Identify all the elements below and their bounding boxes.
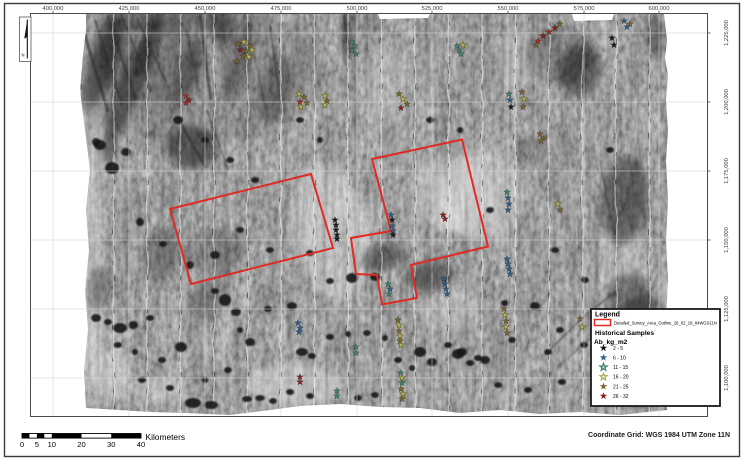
svg-text:21 - 25: 21 - 25 xyxy=(613,384,629,390)
svg-text:1,225,000: 1,225,000 xyxy=(724,20,730,46)
svg-text:5: 5 xyxy=(35,440,39,449)
svg-text:Historical Samples: Historical Samples xyxy=(595,330,654,337)
svg-text:40: 40 xyxy=(137,440,145,449)
svg-text:Coordinate Grid: WGS 1984 UTM: Coordinate Grid: WGS 1984 UTM Zone 11N xyxy=(588,432,730,439)
svg-text:Legend: Legend xyxy=(595,312,620,319)
svg-text:N: N xyxy=(22,53,25,58)
svg-text:2 - 5: 2 - 5 xyxy=(613,346,623,352)
svg-text:1,125,000: 1,125,000 xyxy=(724,296,730,322)
svg-text:1,175,000: 1,175,000 xyxy=(724,158,730,184)
svg-text:20: 20 xyxy=(77,440,85,449)
svg-text:1,100,000: 1,100,000 xyxy=(724,365,730,391)
svg-text:10: 10 xyxy=(48,440,56,449)
svg-text:11 - 15: 11 - 15 xyxy=(613,365,628,371)
svg-text:16 - 20: 16 - 20 xyxy=(613,375,629,381)
svg-text:0: 0 xyxy=(20,440,24,449)
svg-text:26 - 32: 26 - 32 xyxy=(613,394,629,400)
svg-text:1,200,000: 1,200,000 xyxy=(724,89,730,115)
svg-text:Detailed_Survey_Area_Outline_2: Detailed_Survey_Area_Outline_26_02_18_84… xyxy=(614,321,717,326)
svg-text:6 - 10: 6 - 10 xyxy=(613,356,626,362)
svg-text:1,150,000: 1,150,000 xyxy=(724,227,730,253)
svg-text:Kilometers: Kilometers xyxy=(146,432,186,442)
svg-text:30: 30 xyxy=(107,440,115,449)
